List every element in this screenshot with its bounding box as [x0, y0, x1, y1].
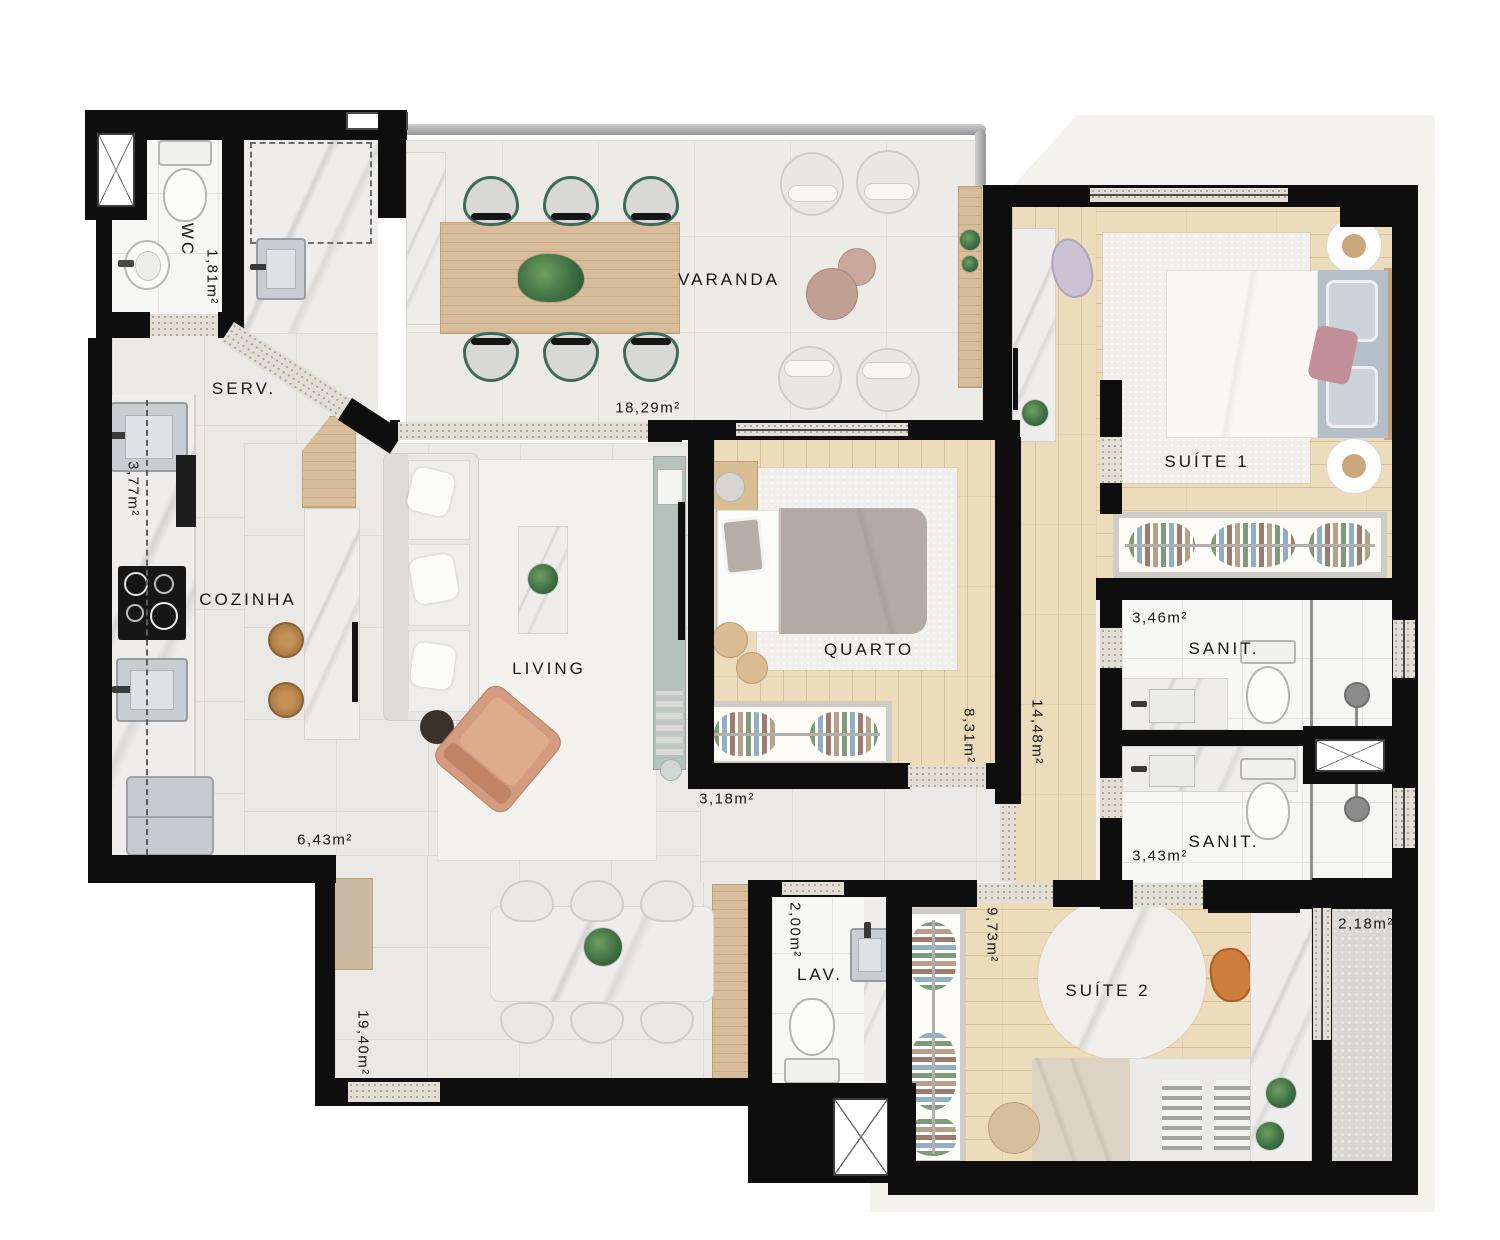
door-threshold-quarto — [908, 765, 988, 787]
wall — [1053, 880, 1133, 907]
door-threshold-sanit1 — [1100, 628, 1122, 668]
wall — [995, 769, 1021, 804]
window-sanit1 — [1393, 620, 1415, 678]
sanit2-shower-head — [1344, 796, 1370, 822]
area-label-quarto: 8,31m² — [961, 708, 978, 764]
suite1-bed — [1166, 268, 1392, 440]
wall — [1100, 600, 1122, 628]
kitchen-cooktop — [118, 566, 186, 640]
wall — [1115, 730, 1307, 746]
threshold-hall — [1000, 804, 1016, 882]
suite2-round-rug — [1038, 896, 1206, 1060]
wall — [1100, 668, 1122, 778]
suite2-pouf — [988, 1102, 1040, 1154]
kitchen-centerline — [146, 400, 148, 855]
sanit1-glass-divider — [1310, 598, 1313, 732]
wall — [648, 420, 682, 442]
wall — [1096, 578, 1418, 600]
varanda-lounge-chair — [778, 346, 842, 410]
wall — [748, 880, 772, 1085]
wall — [88, 338, 112, 858]
area-label-cozinha-bancada: 3,77m² — [125, 461, 142, 517]
laundry-tank-sink — [256, 238, 306, 300]
varanda-planter — [958, 186, 982, 388]
dining-chair — [640, 880, 694, 922]
lav-sink — [850, 928, 890, 982]
window-sanit2 — [1393, 788, 1415, 848]
wall — [222, 110, 244, 338]
wc-sink — [124, 240, 170, 290]
kitchen-bar-stool — [268, 682, 304, 718]
shaft-duct — [97, 133, 135, 207]
hall-console-plant — [1022, 400, 1048, 426]
quarto-pouf — [712, 622, 748, 658]
room-label-quarto: QUARTO — [824, 640, 914, 660]
area-label-varanda: 18,29m² — [615, 400, 681, 417]
room-label-living: LIVING — [512, 659, 586, 679]
area-label-lav: 2,00m² — [787, 902, 804, 958]
floor-terrace — [1332, 893, 1392, 1163]
varanda-glass-railing-corner — [975, 130, 986, 188]
wall — [888, 1161, 1418, 1195]
area-label-cozinha-circulacao: 6,43m² — [297, 832, 353, 849]
dining-table-plant — [584, 928, 622, 966]
sanit1-counter — [1122, 678, 1228, 730]
quarto-pouf — [736, 652, 768, 684]
area-label-terraco: 2,18m² — [1338, 916, 1394, 933]
suite2-plant — [1266, 1078, 1296, 1108]
room-label-suite1: SUÍTE 1 — [1164, 452, 1249, 472]
laundry-cabinet-dashed — [250, 142, 372, 244]
varanda-planter-plant — [962, 256, 978, 272]
area-label-sanit2: 3,43m² — [1132, 848, 1188, 865]
room-label-serv: SERV. — [212, 379, 276, 399]
window-suite2-terrace — [1313, 908, 1331, 1040]
living-sofa — [383, 453, 479, 721]
wall — [995, 437, 1021, 769]
room-label-sanit1: SANIT. — [1189, 639, 1260, 659]
living-tv — [678, 502, 685, 640]
dining-chair — [500, 880, 554, 922]
wall — [688, 437, 714, 769]
room-label-lav: LAV. — [797, 965, 843, 985]
sanit1-shower-head — [1344, 682, 1370, 708]
wall — [96, 312, 150, 338]
wall — [1100, 818, 1122, 885]
area-label-hall-intimo: 14,48m² — [1029, 699, 1046, 765]
wall — [1392, 185, 1418, 1195]
door-threshold-sanit2 — [1100, 778, 1122, 818]
sanit2-toilet — [1240, 758, 1296, 842]
shaft-duct — [833, 1098, 889, 1176]
floor-plan-canvas: WC 1,81m² SERV. COZINHA 3,77m² 6,43m² VA… — [0, 0, 1500, 1240]
wall — [315, 877, 335, 1106]
hall-console-tv — [1013, 348, 1018, 410]
quarto-closet — [700, 701, 892, 767]
varanda-lounge-chair — [856, 150, 920, 214]
suite2-bed — [1032, 1058, 1252, 1166]
wall — [1340, 185, 1392, 227]
shaft-duct — [1315, 739, 1385, 772]
living-coffee-table-plant — [528, 564, 558, 594]
kitchen-fridge — [126, 776, 214, 856]
door-threshold-suite2 — [1133, 883, 1203, 907]
room-label-suite2: SUÍTE 2 — [1065, 981, 1150, 1001]
varanda-table-plant — [518, 254, 584, 302]
kitchen-bar-stool — [268, 622, 304, 658]
varanda-planter-plant — [960, 230, 980, 250]
door-threshold-lav — [782, 882, 844, 895]
door-threshold-varanda — [398, 422, 650, 440]
suite1-nightstand — [1326, 438, 1382, 494]
backdrop-slab-diagonal — [1005, 115, 1077, 195]
window-quarto — [736, 423, 908, 436]
room-label-sanit2: SANIT. — [1189, 832, 1260, 852]
door-threshold-suite1 — [1100, 437, 1122, 483]
lav-toilet — [784, 998, 840, 1084]
varanda-lounge-chair — [780, 152, 844, 216]
wall — [888, 1048, 912, 1168]
kitchen-sink-bottom — [116, 658, 188, 722]
dining-chair — [570, 880, 624, 922]
wc-toilet — [158, 140, 212, 224]
area-label-jantar: 19,40m² — [355, 1010, 372, 1076]
suite1-wardrobe — [1113, 512, 1387, 578]
door-threshold-wc — [150, 314, 218, 336]
area-label-wc: 1,81m² — [204, 249, 221, 305]
area-label-hall-social: 3,18m² — [699, 791, 755, 808]
varanda-side-table — [806, 268, 858, 320]
room-label-wc: WC — [177, 223, 197, 257]
wall — [983, 185, 1012, 440]
wall — [1100, 483, 1122, 514]
kitchen-island-tv — [352, 622, 358, 702]
room-label-varanda: VARANDA — [678, 270, 780, 290]
room-label-cozinha: COZINHA — [199, 590, 297, 610]
area-label-sanit1: 3,46m² — [1132, 610, 1188, 627]
wall — [378, 110, 406, 218]
quarto-bed — [705, 508, 927, 634]
area-label-suite2: 9,73m² — [984, 907, 1001, 963]
varanda-glass-railing — [404, 124, 986, 135]
suite2-plant — [1256, 1122, 1284, 1150]
wall — [688, 763, 910, 789]
dining-console — [333, 878, 373, 970]
door-threshold-dining — [348, 1082, 440, 1102]
wall — [88, 855, 336, 883]
wall — [1100, 380, 1122, 437]
kitchen-oven — [176, 455, 196, 527]
threshold-corridor-suite2 — [977, 883, 1053, 903]
varanda-lounge-chair — [856, 348, 920, 412]
window-suite1 — [1090, 188, 1288, 202]
